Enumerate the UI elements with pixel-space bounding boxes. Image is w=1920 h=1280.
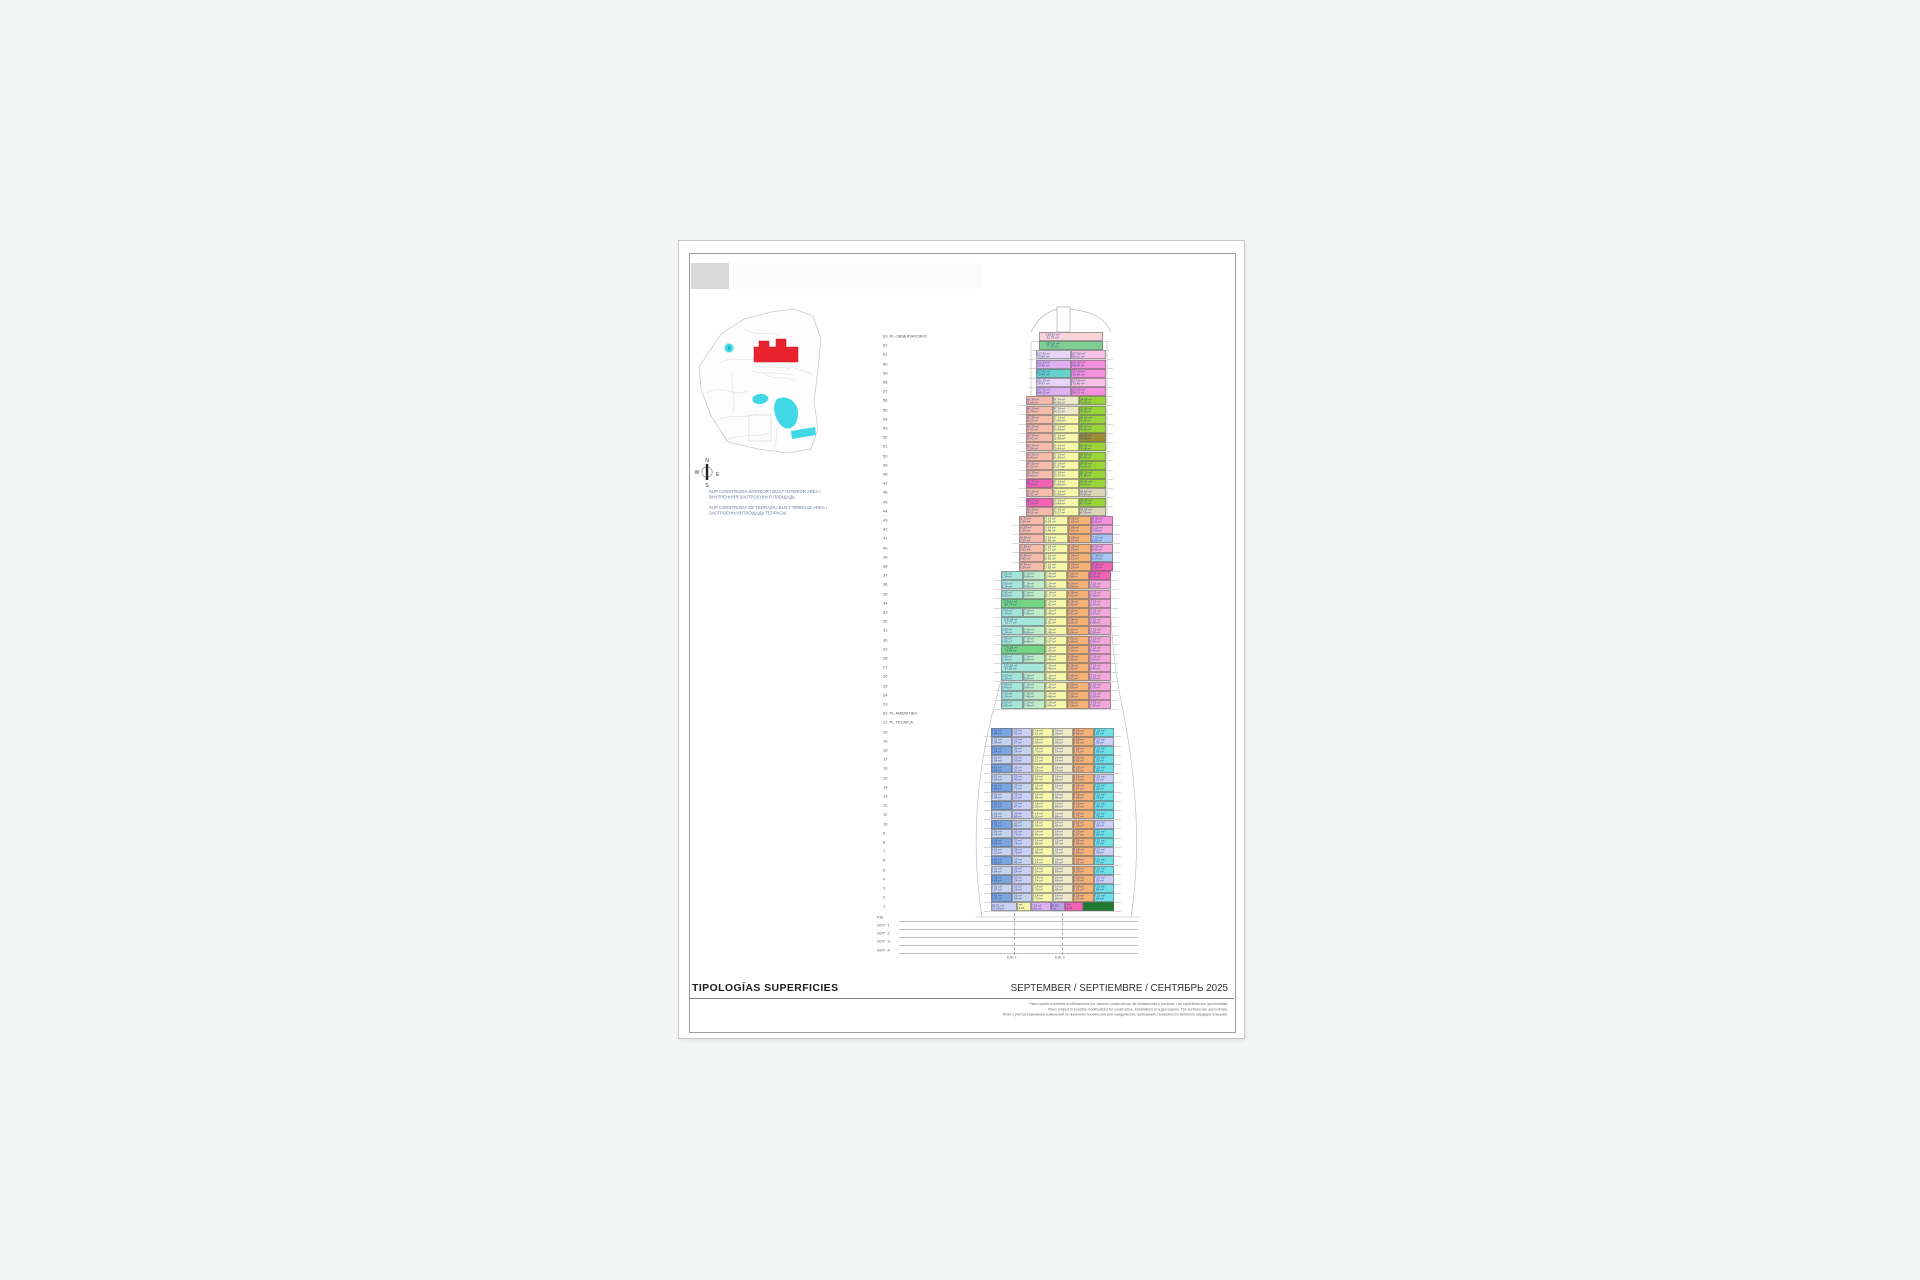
disclaimer-notes: Plano sujeto a posibles modificaciones p… [777, 1002, 1228, 1034]
floor-label: 54 [883, 417, 892, 426]
floor-label: 7 [883, 849, 887, 858]
unit-cell: 87.14 m²20.24 m² [1032, 875, 1053, 884]
unit-cell: 117.21 m²16.44 m² [1094, 801, 1115, 810]
floor-label: 5 [883, 868, 887, 877]
floor-label: 48 [883, 472, 892, 481]
floor-label: 31 [883, 628, 892, 637]
unit-cell: 87.14 m²23.17 m² [1053, 507, 1079, 516]
axis-dashed-line [1062, 913, 1064, 955]
unit-cell: 87.14 m²21.70 m² [1032, 893, 1053, 902]
unit-cell: 87.14 m²23.48 m² [1045, 608, 1067, 617]
unit-cell: 91.33 m²16.23 m² [1012, 792, 1033, 801]
unit-cell: 134.65 m²76.16 m² [1079, 415, 1106, 424]
unit-cell: 134.65 m²29.34 m² [1079, 488, 1106, 497]
unit-cell: 87.14 m²20.88 m² [1053, 829, 1074, 838]
unit-cell: 91.33 m²14.54 m² [1012, 893, 1033, 902]
unit-cell: 87.14 m²23.48 m² [1053, 424, 1079, 433]
unit-cell: 131.50 m²98.06 m² [1071, 360, 1106, 369]
basement-label: SOT -4 [877, 948, 903, 957]
unit-cell: 87.14 m²21.70 m² [1032, 884, 1053, 893]
unit-cell: 86.61 m²32.57 m² [991, 801, 1012, 810]
floor-label: 8 [883, 840, 887, 849]
floor-label: 50 [883, 454, 892, 463]
unit-cell: 87.14 m²23.48 m² [1045, 626, 1067, 635]
unit-cell: 94.29 m²16.29 m² [1068, 544, 1091, 553]
unit-cell: 89.61 m²42.84 m² [991, 783, 1012, 792]
unit-cell: 117.21 m²55.89 m² [1091, 534, 1113, 543]
unit-cell: 94.28 m²19.71 m² [1073, 746, 1094, 755]
axis-dashed-line [1014, 913, 1016, 955]
unit-cell: 87.14 m²23.21 m² [1017, 902, 1031, 911]
disclaimer-es: Plano sujeto a posibles modificaciones p… [1029, 1003, 1228, 1007]
unit-cell: 87.03 m²31.14 m² [1001, 672, 1023, 681]
unit-cell: 91.33 m²14.24 m² [1012, 866, 1033, 875]
unit-cell: 94.28 m²14.92 m² [1067, 672, 1089, 681]
unit-cell: 87.14 m²23.21 m² [1053, 847, 1074, 856]
unit-cell: 94.28 m²13.58 m² [1067, 626, 1089, 635]
floor-label: 45 [883, 500, 892, 509]
floor-label: 61 [883, 352, 892, 361]
unit-cell: 141.22 m²77.89 m² [1091, 525, 1113, 534]
unit-cell: 94.01 m²44.84 m² [991, 875, 1012, 884]
unit-cell: 87.14 m²18.89 m² [1053, 866, 1074, 875]
unit-cell: 91.33 m²14.24 m² [1012, 884, 1033, 893]
unit-cell: 87.14 m²21.86 m² [1032, 783, 1053, 792]
unit-cell: 117.21 m²25.52 m² [1094, 866, 1115, 875]
unit-cell: 92.82 m²43.04 m² [991, 829, 1012, 838]
unit-cell: 87.14 m²22.98 m² [1032, 764, 1053, 773]
unit-cell: 117.21 m²20.28 m² [1089, 590, 1111, 599]
floor-label: 44 [883, 509, 892, 518]
floor-label: 22 PL.AMENITIES [883, 711, 951, 720]
sheet-date: SEPTEMBER / SEPTIEMBRE / СЕНТЯБРЬ 2025 [1011, 983, 1228, 994]
unit-cell: 163.72 m²75.24 m² [1026, 479, 1053, 488]
unit-cell: 87.12 m²21.47 m² [1053, 838, 1074, 847]
screenshot-canvas: N S W E SUP CONSTRUIDA INTERIOR / BUILT … [0, 0, 1920, 1280]
floor-label: 63 PL.OBSERVATORIO [883, 334, 970, 343]
unit-cell: 87.14 m²22.08 m² [1053, 737, 1074, 746]
unit-cell: 134.65 m²75.40 m² [1079, 433, 1106, 442]
unit-cell: 115.21 m²46.79 m² [1089, 682, 1111, 691]
floor-label: 12 [883, 803, 892, 812]
unit-cell: 87.14 m²16.25 m² [1031, 902, 1051, 911]
unit-cell: 117.21 m²20.24 m² [1089, 626, 1111, 635]
unit-cell: 150.39 m²85.89 m² [1019, 553, 1044, 562]
unit-cell: 87.03 m²34.59 m² [1001, 636, 1023, 645]
unit-cell: 87.14 m²22.24 m² [1032, 866, 1053, 875]
unit-cell: 152.21 m²30.24 m² [1089, 571, 1111, 580]
basement-label: SOT -3 [877, 939, 903, 948]
floor-label: 14 [883, 785, 892, 794]
unit-cell: 86.82 m²31.36 m² [991, 820, 1012, 829]
unit-cell: 87.14 m²23.27 m² [1053, 461, 1079, 470]
unit-cell: 87.14 m²14.97 m² [1032, 774, 1053, 783]
unit-cell: 87.14 m²17.48 m² [1023, 691, 1045, 700]
unit-cell: 87.14 m²21.88 m² [1032, 847, 1053, 856]
unit-cell: 91.33 m²16.78 m² [1012, 829, 1033, 838]
basement-line [899, 929, 1138, 930]
unit-cell: 94.28 m²11.73 m² [1073, 810, 1094, 819]
unit-cell: 87.14 m²23.21 m² [1032, 755, 1053, 764]
floor-label: 30 [883, 638, 892, 647]
unit-cell: 150.39 m²36.92 m² [1026, 470, 1053, 479]
unit-cell: 134.65 m²29.34 m² [1079, 479, 1106, 488]
drawing-sheet: N S W E SUP CONSTRUIDA INTERIOR / BUILT … [678, 240, 1245, 1039]
floor-label: 27 [883, 665, 892, 674]
floor-label: 36 [883, 582, 892, 591]
unit-cell: 91.33 m²14.50 m² [1012, 755, 1033, 764]
floor-label: 49 [883, 463, 892, 472]
unit-cell: 94.28 m²13.58 m² [1067, 682, 1089, 691]
unit-cell: 47.74 m²24.31 m² [1053, 406, 1079, 415]
unit-cell: 117.21 m²44.98 m² [1094, 737, 1115, 746]
unit-cell: 94.28 m²15.90 m² [1073, 847, 1094, 856]
unit-cell: 117.21 m²31.84 m² [1094, 884, 1115, 893]
unit-cell: 87.14 m²21.70 m² [1032, 746, 1053, 755]
unit-cell: 87.14 m²23.48 m² [1045, 672, 1067, 681]
unit-cell: 117.21 m²42.78 m² [1094, 810, 1115, 819]
axis-label: EJE 1 [1007, 955, 1027, 964]
unit-cell: 94.39 m²13.59 m² [1068, 562, 1091, 571]
floor-label: 43 [883, 518, 892, 527]
unit-cell: 89.61 m²43.04 m² [991, 792, 1012, 801]
unit-cell: 160.73 m²71.09 m² [1026, 498, 1053, 507]
unit-cell: 87.14 m²23.21 m² [1032, 728, 1053, 737]
floor-label: 25 [883, 684, 892, 693]
unit-cell: 87.14 m²23.48 m² [1045, 580, 1067, 589]
floor-label: 11 [883, 812, 891, 821]
floor-label: 1 [883, 904, 887, 913]
unit-cell: 94.28 m²14.92 m² [1067, 608, 1089, 617]
unit-cell: 127.41 m²70.84 m² [1036, 350, 1071, 359]
unit-cell: 87.14 m²23.48 m² [1053, 488, 1079, 497]
unit-cell: 117.21 m²40.78 m² [1094, 792, 1115, 801]
unit-cell: 94.28 m²15.01 m² [1073, 884, 1094, 893]
unit-cell: 150.30 m²94.02 m² [1026, 461, 1053, 470]
floor-label: 34 [883, 601, 892, 610]
unit-cell: 94.28 m²17.28 m² [1073, 820, 1094, 829]
unit-cell: 134.65 m²76.16 m² [1079, 461, 1106, 470]
floor-label: 46 [883, 490, 892, 499]
unit-cell: 94.28 m²17.92 m² [1067, 590, 1089, 599]
unit-cell: 94.28 m²18.27 m² [1073, 829, 1094, 838]
unit-cell: 150.39 m²36.31 m² [1026, 507, 1053, 516]
unit-cell: 87.14 m²20.34 m² [1032, 820, 1053, 829]
unit-cell: 87.14 m²23.94 m² [1045, 700, 1067, 709]
unit-cell: 36.50 m² [1051, 902, 1065, 911]
unit-cell: 87.14 m²23.48 m² [1053, 498, 1079, 507]
unit-cell: 87.14 m²23.17 m² [1044, 544, 1068, 553]
floor-label: 17 [883, 757, 892, 766]
floor-label: 47 [883, 481, 892, 490]
floor-label: 55 [883, 408, 892, 417]
unit-cell: 156.36 m²26.34 m² [1019, 562, 1044, 571]
unit-cell: 87.14 m²20.17 m² [1045, 590, 1067, 599]
floor-label: 26 [883, 674, 892, 683]
floor-label: 38 [883, 564, 892, 573]
unit-cell: 91.33 m²14.96 m² [1012, 820, 1033, 829]
unit-cell: 117.21 m²20.24 m² [1089, 608, 1111, 617]
unit-cell: 150.39 m²36.31 m² [1026, 488, 1053, 497]
disclaimer-en: Plans subject to possible modifications … [1048, 1008, 1228, 1012]
unit-cell: 89.61 m²43.04 m² [991, 774, 1012, 783]
unit-cell: 117.21 m²29.52 m² [1094, 875, 1115, 884]
unit-cell: 94.28 m²15.01 m² [1073, 893, 1094, 902]
unit-cell: 192.01 m²117.09 m² [991, 902, 1017, 911]
unit-cell: 94.28 m²13.58 m² [1067, 700, 1089, 709]
basement-line [899, 945, 1138, 946]
unit-cell: 87.14 m²21.82 m² [1045, 645, 1067, 654]
unit-cell: 87.03 m²31.14 m² [1001, 571, 1023, 580]
unit-cell: 91.61 m²43.04 m² [991, 810, 1012, 819]
unit-cell: 117.21 m²67.29 m² [1089, 700, 1111, 709]
floor-label: 9 [883, 831, 887, 840]
unit-cell: 104.35 m²86.39 m² [1091, 544, 1113, 553]
unit-cell: 87.14 m²19.89 m² [1053, 893, 1074, 902]
unit-cell: 94.01 m²44.84 m² [991, 866, 1012, 875]
unit-cell: 91.38 m²16.78 m² [1012, 847, 1033, 856]
basement-line [899, 921, 1138, 922]
unit-cell: 117.21 m²20.24 m² [1089, 636, 1111, 645]
unit-cell: 87.14 m²23.48 m² [1045, 571, 1067, 580]
floor-label: 59 [883, 371, 892, 380]
floor-label: 10 [883, 822, 892, 831]
unit-cell: 117.21 m²18.83 m² [1094, 764, 1115, 773]
unit-cell: 134.65 m²86.73 m² [1079, 498, 1106, 507]
unit-cell: 117.21 m²20.24 m² [1089, 654, 1111, 663]
unit-cell: 94.28 m²13.58 m² [1067, 654, 1089, 663]
unit-cell: 117.21 m²26.44 m² [1089, 663, 1111, 672]
unit-cell: 134.65 m²76.16 m² [1079, 424, 1106, 433]
floor-label: 2 [883, 895, 887, 904]
unit-cell: 89.61 m²41.57 m² [991, 893, 1012, 902]
unit-cell: 134.65 m²34.26 m² [1079, 507, 1106, 516]
unit-cell: 127.41 m²70.40 m² [1036, 369, 1071, 378]
unit-cell: 178.51 m²80.74 m² [1001, 599, 1045, 608]
floor-label: 37 [883, 573, 892, 582]
unit-cell: 217.36 m²24.14 m² [1091, 553, 1113, 562]
unit-cell: 87.14 m²21.39 m² [1053, 452, 1079, 461]
unit-cell: 87.14 m²19.89 m² [1023, 672, 1045, 681]
unit-cell: 87.14 m²21.79 m² [1053, 764, 1074, 773]
unit-cell: 87.03 m²23.40 m² [1001, 682, 1023, 691]
floor-label: 15 [883, 776, 892, 785]
unit-cell: 117.21 m²20.24 m² [1089, 672, 1111, 681]
unit-cell: 87.03 m²31.14 m² [1001, 654, 1023, 663]
unit-cell: 87.14 m²19.89 m² [1023, 626, 1045, 635]
unit-cell: 87.14 m²19.89 m² [1023, 580, 1045, 589]
unit-cell: 89.61 m²41.57 m² [991, 884, 1012, 893]
unit-cell: 164.38 m²20.35 m² [1091, 516, 1113, 525]
unit-cell: 87.14 m²22.06 m² [1032, 737, 1053, 746]
unit-cell: 89.61 m²43.04 m² [991, 755, 1012, 764]
floor-label: 6 [883, 858, 887, 867]
unit-cell: 91.33 m²18.07 m² [1012, 737, 1033, 746]
unit-cell: 127.60 m²70.40 m² [1071, 378, 1106, 387]
unit-cell: 91.33 m²15.96 m² [1012, 856, 1033, 865]
floor-label: 41 [883, 536, 892, 545]
unit-cell: 150.39 m²86.31 m² [1026, 424, 1053, 433]
floor-label: 52 [883, 435, 892, 444]
floor-label: 42 [883, 527, 892, 536]
unit-cell: 117.21 m²23.08 m² [1094, 746, 1115, 755]
floor-label: 29 [883, 647, 892, 656]
unit-cell: 131.26 m²98.48 m² [1036, 360, 1071, 369]
unit-cell: 112.21 m²32.77 m² [1094, 856, 1115, 865]
unit-cell: 117.21 m²20.24 m² [1089, 691, 1111, 700]
unit-cell: 94.61 m²43.22 m² [991, 847, 1012, 856]
unit-cell: 134.65 m²30.40 m² [1079, 452, 1106, 461]
unit-cell: 94.28 m²13.58 m² [1067, 663, 1089, 672]
unit-cell: 150.39 m²73.36 m² [1026, 442, 1053, 451]
unit-cell: 175.28 m²76.59 m² [1001, 645, 1045, 654]
unit-cell: 94.28 m²14.29 m² [1073, 866, 1094, 875]
unit-cell: 87.03 m²31.14 m² [1001, 580, 1023, 589]
unit-cell: 117.21 m²27.84 m² [1094, 893, 1115, 902]
unit-cell: 94.28 m²15.13 m² [1068, 553, 1091, 562]
unit-cell: 87.14 m²19.89 m² [1023, 654, 1045, 663]
floor-label: 53 [883, 426, 892, 435]
unit-cell: 218.51 m²91.73 m² [1039, 332, 1103, 341]
unit-cell: 87.14 m²21.82 m² [1045, 599, 1067, 608]
unit-cell: 87.14 m²17.82 m² [1044, 562, 1068, 571]
unit-cell: 117.21 m²18.28 m² [1089, 617, 1111, 626]
unit-cell: 117.21 m²23.28 m² [1094, 783, 1115, 792]
unit-cell: 87.14 m²21.82 m² [1045, 617, 1067, 626]
unit-cell: 127.60 m²80.01 m² [1071, 387, 1106, 396]
unit-cell: 87.14 m²19.89 m² [1023, 682, 1045, 691]
unit-cell: 47.74 m²34.26 m² [1053, 396, 1079, 405]
unit-cell: 94.61 m²43.80 m² [991, 856, 1012, 865]
unit-cell: 94.28 m²13.58 m² [1067, 571, 1089, 580]
unit-cell: 87.14 m²18.48 m² [1023, 636, 1045, 645]
unit-cell: 87.14 m²18.65 m² [1044, 553, 1068, 562]
unit-cell: 94.28 m²15.51 m² [1073, 856, 1094, 865]
unit-cell: 87.14 m²16.25 m² [1044, 516, 1068, 525]
unit-cell: 87.14 m²22.28 m² [1053, 728, 1074, 737]
unit-cell: 92.82 m²43.04 m² [991, 838, 1012, 847]
floor-label: 40 [883, 546, 892, 555]
unit-cell: 150.39 m²36.43 m² [1026, 433, 1053, 442]
unit-cell: 94.28 m²18.28 m² [1073, 792, 1094, 801]
unit-cell: 87.14 m²21.80 m² [1032, 810, 1053, 819]
floor-label: 23 [883, 702, 892, 711]
unit-cell: 123.65 m²75.40 m² [1079, 406, 1106, 415]
unit-cell: 150.39 m²86.43 m² [1026, 452, 1053, 461]
unit-cell: 89.61 m²42.84 m² [991, 746, 1012, 755]
unit-cell: 87.14 m²20.88 m² [1053, 801, 1074, 810]
unit-cell: 134.65 m²74.63 m² [1079, 396, 1106, 405]
unit-cell: 117.21 m²44.23 m² [1094, 755, 1115, 764]
unit-cell: 87.14 m²22.86 m² [1032, 829, 1053, 838]
unit-cell: 117.21 m²26.44 m² [1089, 645, 1111, 654]
titleblock-rule [689, 998, 1234, 999]
unit-cell: 94.28 m²13.58 m² [1067, 691, 1089, 700]
floor-label: 58 [883, 380, 892, 389]
unit-cell: 94.28 m²18.27 m² [1068, 534, 1091, 543]
unit-cell: 87.14 m²17.89 m² [1023, 608, 1045, 617]
unit-cell: 94.28 m²13.58 m² [1067, 599, 1089, 608]
unit-cell: 131.43 m²29.47 m² [1036, 378, 1071, 387]
unit-cell: 87.14 m²17.48 m² [1023, 700, 1045, 709]
floor-label: 20 [883, 730, 892, 739]
unit-cell: 87.14 m²20.88 m² [1053, 810, 1074, 819]
unit-cell: 150.29 m²91.39 m² [1019, 525, 1044, 534]
unit-cell: 117.21 m²47.13 m² [1094, 774, 1115, 783]
unit-cell: 87.14 m²23.77 m² [1053, 470, 1079, 479]
unit-cell: 87.14 m²23.48 m² [1045, 663, 1067, 672]
unit-cell: 87.14 m²21.14 m² [1053, 755, 1074, 764]
unit-cell: 94.28 m²18.67 m² [1073, 783, 1094, 792]
unit-cell: 91.33 m²44.32 m² [1012, 728, 1033, 737]
unit-cell: 117.21 m²58.48 m² [1094, 847, 1115, 856]
axis-label: EJE 2 [1055, 955, 1075, 964]
unit-cell: 94.28 m²14.29 m² [1073, 875, 1094, 884]
unit-cell: 87.14 m²22.48 m² [1053, 433, 1079, 442]
unit-cell: 94.28 m²13.58 m² [1067, 645, 1089, 654]
floor-label: 16 [883, 766, 892, 775]
floor-label: 28 [883, 656, 892, 665]
unit-cell: 89.61 m²42.84 m² [991, 728, 1012, 737]
floor-label: 13 [883, 794, 892, 803]
unit-cell: 91.33 m²16.34 m² [1012, 746, 1033, 755]
unit-cell: 94.28 m²16.18 m² [1073, 801, 1094, 810]
unit-cell: 91.33 m²16.87 m² [1012, 801, 1033, 810]
floor-label: 51 [883, 444, 892, 453]
floor-label: 32 [883, 619, 892, 628]
unit-cell: 94.28 m²13.58 m² [1067, 636, 1089, 645]
unit-cell: 150.39 m²35.28 m² [1026, 415, 1053, 424]
unit-cell: 87.03 m²31.14 m² [1001, 691, 1023, 700]
floor-label: 62 [883, 343, 892, 352]
unit-cell: 94.28 m²16.25 m² [1068, 516, 1091, 525]
unit-cell: 156.36 m²81.06 m² [1026, 396, 1053, 405]
unit-cell: 87.14 m²19.89 m² [1023, 571, 1045, 580]
unit-cell: 161.72 m²51.94 m² [1019, 516, 1044, 525]
unit-cell: 129.39 m²29.63 m² [1019, 544, 1044, 553]
sheet-title: TIPOLOGÍAS SUPERFICIES [692, 982, 838, 994]
unit-cell: 141.36 m²40.36 m² [1091, 562, 1113, 571]
unit-cell: 87.14 m²24.54 m² [1053, 792, 1074, 801]
basement-line [899, 953, 1138, 954]
unit-cell: 134.65 m²76.16 m² [1079, 442, 1106, 451]
unit-cell: 137.46 m²33.34 m² [1071, 369, 1106, 378]
unit-cell: 87.14 m²23.48 m² [1053, 442, 1079, 451]
unit-cell: 87.03 m²33.03 m² [1001, 590, 1023, 599]
unit-cell: 175.28 m²87.28 m² [1001, 663, 1045, 672]
floor-label: 56 [883, 398, 892, 407]
unit-cell: 87.14 m²23.48 m² [1053, 415, 1079, 424]
unit-cell: 89.61 m²42.84 m² [991, 764, 1012, 773]
unit-cell: 87.14 m²19.89 m² [1053, 884, 1074, 893]
unit-cell: 87.14 m²23.48 m² [1045, 691, 1067, 700]
unit-cell: 87.14 m²21.83 m² [1032, 801, 1053, 810]
unit-cell: 94.28 m²18.92 m² [1073, 728, 1094, 737]
unit-cell: 89.61 m²43.04 m² [991, 737, 1012, 746]
unit-cell: 237.56 m²77.07 m² [1039, 341, 1103, 350]
unit-cell: 92.96 m²17.95 m² [1068, 525, 1091, 534]
unit-cell: 94.28 m²19.62 m² [1073, 764, 1094, 773]
unit-cell: 94.28 m²13.58 m² [1067, 617, 1089, 626]
unit-cell: 87.14 m²23.48 m² [1053, 479, 1079, 488]
unit-cell: 127.60 m²80.01 m² [1071, 350, 1106, 359]
unit-cell: 56.22 m²14.37 m² [1065, 902, 1083, 911]
unit-cell: 87.14 m²21.80 m² [1053, 774, 1074, 783]
unit-cell: 87.14 m²13.89 m² [1023, 590, 1045, 599]
unit-cell: 94.28 m²15.90 m² [1073, 838, 1094, 847]
floor-label: 57 [883, 389, 892, 398]
unit-cell: 94.28 m²18.92 m² [1073, 755, 1094, 764]
